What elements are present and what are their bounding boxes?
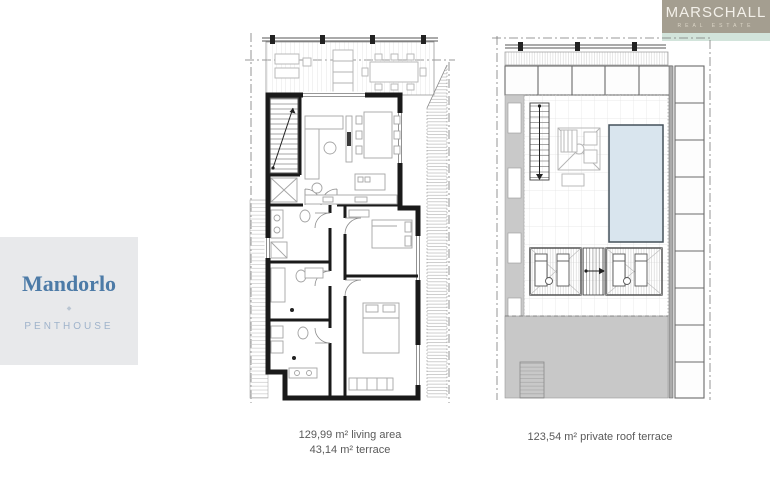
terrace-railing xyxy=(262,38,438,41)
roof-railing xyxy=(505,42,668,65)
staircase xyxy=(270,98,298,173)
deck-steps xyxy=(583,248,605,295)
brochure-page: MARSCHALL REAL ESTATE Mandorlo ◆ PENTHOU… xyxy=(0,0,770,489)
flat-roof-area xyxy=(505,316,668,398)
side-walkway xyxy=(250,200,268,398)
unit-type: PENTHOUSE xyxy=(0,321,138,332)
roof-ladder xyxy=(520,362,544,398)
roof-hatch-strip xyxy=(427,65,447,398)
terrace-area-text: 43,14 m² terrace xyxy=(245,443,455,458)
caption-penthouse: 129,99 m² living area 43,14 m² terrace xyxy=(245,428,455,458)
pool xyxy=(609,125,663,242)
living-area-text: 129,99 m² living area xyxy=(245,428,455,443)
caption-roof: 123,54 m² private roof terrace xyxy=(495,430,705,445)
sun-deck xyxy=(530,248,662,295)
floor-plan-penthouse xyxy=(245,28,455,413)
floor-plan-roof xyxy=(490,28,715,413)
roof-terrace-area-text: 123,54 m² private roof terrace xyxy=(495,430,705,445)
unit-card: Mandorlo ◆ PENTHOUSE xyxy=(0,237,138,365)
logo-name: MARSCHALL xyxy=(666,5,767,21)
roof-tile-column xyxy=(669,66,704,398)
diamond-separator-icon: ◆ xyxy=(0,305,138,312)
wardrobe xyxy=(271,178,297,202)
roof-staircase xyxy=(530,103,549,180)
parapet-strip xyxy=(505,95,524,340)
pergola-panels xyxy=(505,66,672,95)
unit-name: Mandorlo xyxy=(0,271,138,297)
terrace-deck xyxy=(262,35,438,95)
